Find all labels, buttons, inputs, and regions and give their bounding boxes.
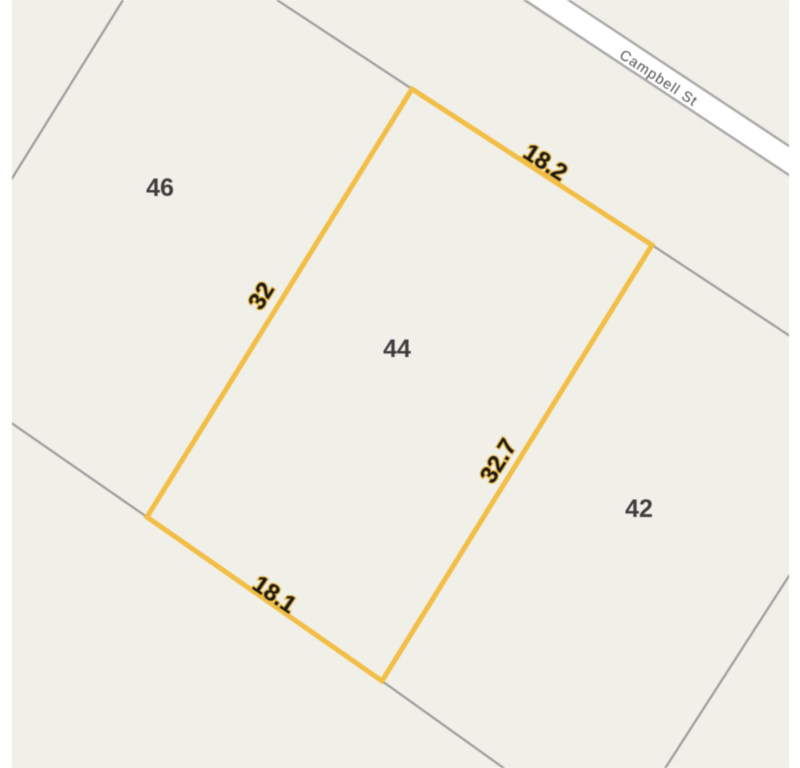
map-margin-right [789,0,800,768]
lot-label-46: 46 [146,174,174,202]
map-viewport[interactable]: 46 44 42 18.2 32 32.7 18.1 Campbell St [0,0,800,768]
cadastral-map[interactable]: 46 44 42 18.2 32 32.7 18.1 Campbell St [0,0,800,768]
lot-label-42: 42 [625,495,653,523]
map-margin-left [0,0,12,768]
lot-label-44: 44 [383,335,411,363]
